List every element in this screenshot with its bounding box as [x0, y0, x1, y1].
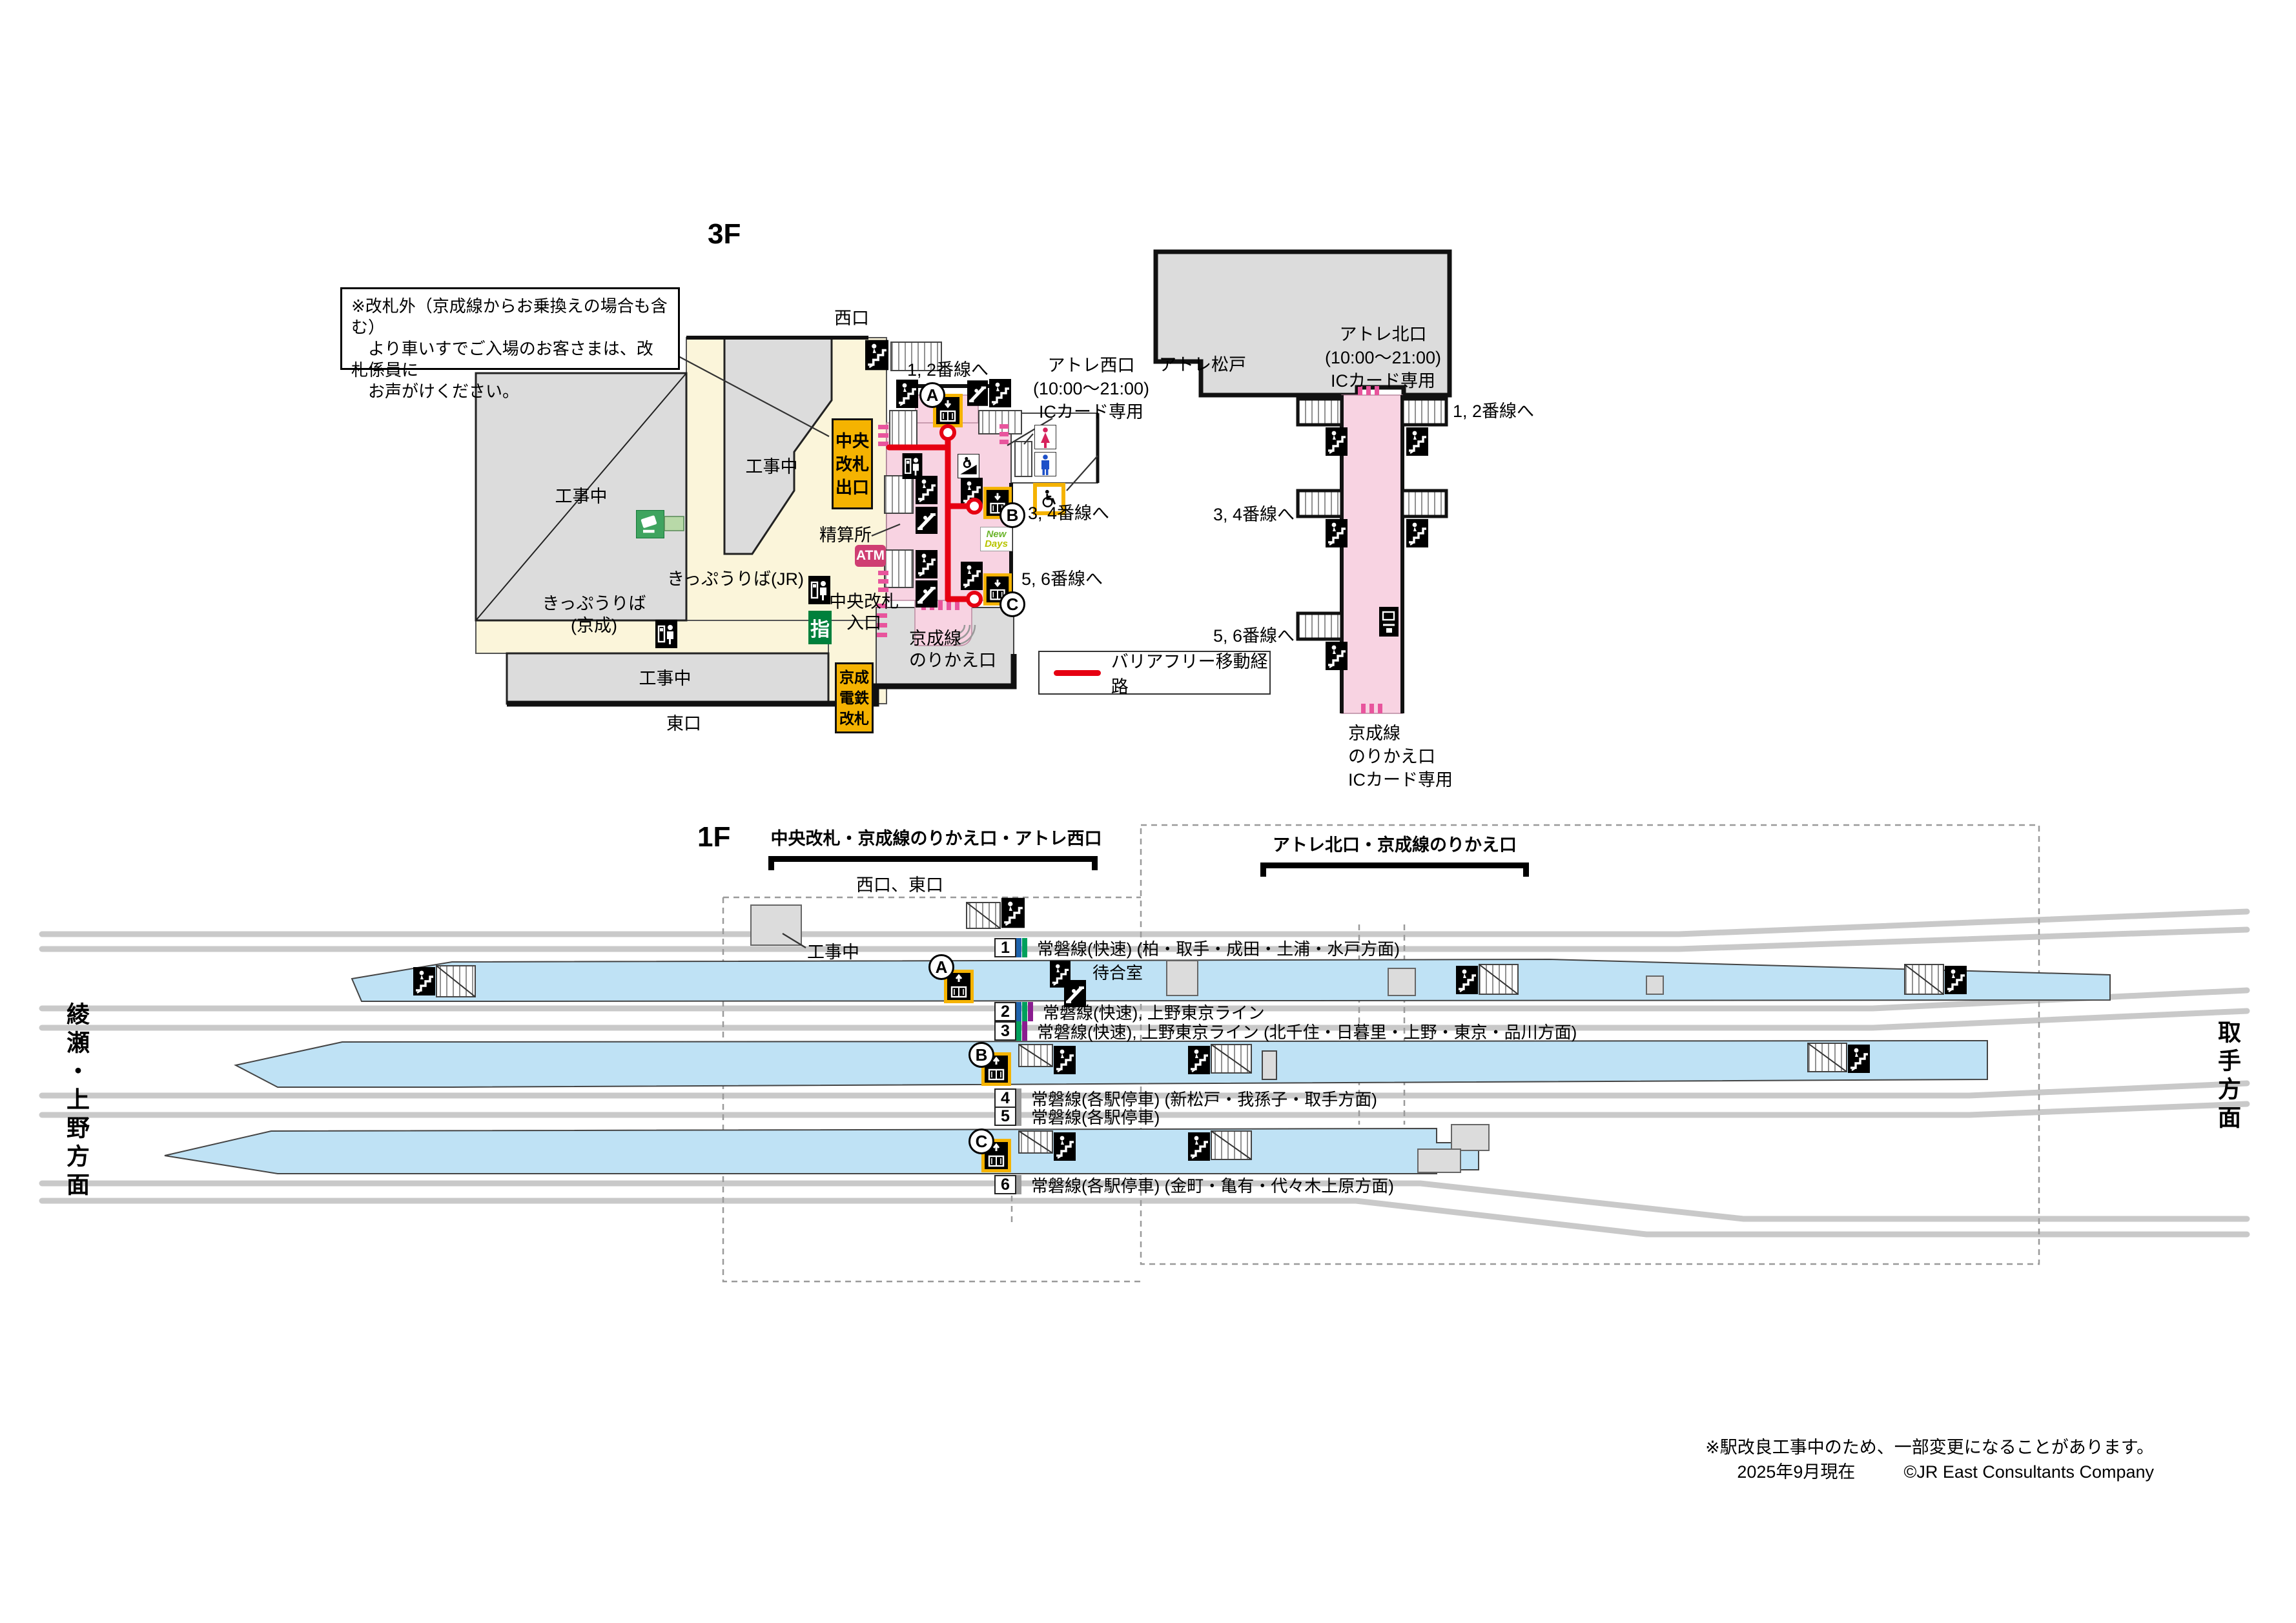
waiting-room-label: 待合室	[1092, 962, 1143, 984]
elevator-A-badge: A	[928, 954, 954, 980]
stairs-icon	[1406, 427, 1428, 456]
platform-label: 常磐線(快速), 上野東京ライン	[1034, 1002, 1265, 1021]
stairs-icon	[1945, 966, 1967, 994]
to-tracks-12-label: 1, 2番線へ	[1453, 400, 1534, 422]
wheelchair-note: ※改札外（京成線からお乗換えの場合も含む） より車いすでご入場のお客さまは、改札…	[340, 287, 680, 370]
stairs-icon	[865, 340, 888, 371]
footer-credit-line: 2025年9月現在 ©JR East Consultants Company	[1573, 1458, 2154, 1483]
line-color-stripes	[1016, 1107, 1022, 1126]
atm-box: ATM	[855, 545, 886, 567]
north-corridor	[1342, 395, 1402, 713]
stairs-icon	[916, 550, 938, 578]
line-color-stripes	[1016, 1021, 1028, 1041]
stairs-icon	[1326, 642, 1348, 670]
construction-label: 工事中	[613, 668, 717, 689]
construction-label: 工事中	[529, 485, 633, 507]
platform-row: 1 常磐線(快速) (柏・取手・成田・土浦・水戸方面)	[994, 938, 1400, 957]
platform-label: 常磐線(快速), 上野東京ライン (北千住・日暮里・上野・東京・品川方面)	[1028, 1021, 1577, 1041]
atre-north-label: アトレ北口 (10:00〜21:00) ICカード専用	[1299, 323, 1467, 393]
platform-row: 3 常磐線(快速), 上野東京ライン (北千住・日暮里・上野・東京・品川方面)	[994, 1021, 1577, 1041]
ticket-office-jr-label: きっぷうりば(JR)	[642, 568, 804, 590]
atre-matsudo-label: アトレ松戸	[1159, 354, 1269, 376]
central-gate-exit-box: 中央 改札 出口	[832, 418, 873, 509]
elevator-B-badge: B	[999, 502, 1025, 528]
footer-credit: ©JR East Consultants Company	[1903, 1462, 2154, 1482]
platform-number: 6	[994, 1175, 1016, 1194]
escalator-icon	[967, 380, 988, 406]
to-tracks-12-label: 1, 2番線へ	[907, 359, 989, 381]
stairs-icon	[1406, 519, 1428, 547]
west-exit-label: 西口	[834, 307, 869, 329]
bracket-right-bar	[1260, 863, 1529, 868]
platform-number: 4	[994, 1088, 1016, 1108]
platform-island-1-2	[352, 959, 2110, 1001]
line-color-stripes	[1016, 1175, 1022, 1194]
line-color-stripes	[1016, 938, 1028, 957]
elevator-C-badge: C	[969, 1128, 994, 1154]
platform-island-5-6	[165, 1128, 1479, 1174]
stairs-icon	[1054, 1132, 1076, 1161]
escalator-icon	[916, 580, 938, 607]
line-color-stripes	[1016, 1002, 1034, 1021]
footer-date: 2025年9月現在	[1737, 1462, 1855, 1482]
stairs-icon	[1326, 519, 1348, 547]
fare-gate-attendant-icon	[903, 453, 923, 479]
line-color-stripes	[1016, 1088, 1022, 1108]
platform-island-3-4	[236, 1041, 1987, 1087]
stairs-icon	[896, 380, 918, 408]
platform-number: 1	[994, 938, 1016, 957]
construction-label: 工事中	[807, 941, 859, 963]
bracket-right-label: アトレ北口・京成線のりかえ口	[1259, 834, 1530, 856]
stairs-icon	[1054, 1046, 1076, 1074]
fare-adjustment-label: 精算所	[795, 524, 872, 546]
stairs-icon	[413, 967, 435, 995]
to-tracks-56-label: 5, 6番線へ	[1198, 625, 1295, 647]
escalator-icon	[916, 507, 938, 534]
keisei-gate-box: 京成 電鉄 改札	[835, 662, 874, 733]
platform-number: 2	[994, 1002, 1016, 1021]
ticket-office-keisei-label: きっぷうりば (京成)	[536, 593, 652, 637]
bracket-left-label: 中央改札・京成線のりかえ口・アトレ西口	[768, 828, 1104, 850]
stairs-icon	[1001, 898, 1025, 928]
floor-map-canvas	[0, 0, 2296, 1623]
platform-label: 常磐線(各駅停車)	[1022, 1107, 1160, 1126]
station-map: 3F 1F ※改札外（京成線からお乗換えの場合も含む） より車いすでご入場のお客…	[0, 0, 2296, 1623]
to-tracks-34-label: 3, 4番線へ	[1198, 504, 1295, 526]
platform-row: 5 常磐線(各駅停車)	[994, 1107, 1160, 1126]
stairs-icon	[1188, 1132, 1210, 1161]
wheelchair-ramp-icon	[958, 454, 979, 478]
bracket-left-bar	[768, 856, 1098, 862]
footer-note: ※駅改良工事中のため、一部変更になることがあります。	[1573, 1433, 2154, 1458]
stairs-icon	[961, 562, 983, 590]
stairs-icon	[916, 476, 938, 504]
toilet-women-icon	[1034, 425, 1056, 449]
stairs-icon	[1456, 966, 1478, 994]
to-tracks-34-label: 3, 4番線へ	[1028, 502, 1109, 524]
platform-row: 6 常磐線(各駅停車) (金町・亀有・代々木上原方面)	[994, 1175, 1394, 1194]
floor3-title: 3F	[708, 218, 741, 250]
platform-number: 3	[994, 1021, 1016, 1041]
elevator-A-badge: A	[919, 382, 945, 408]
keisei-transfer-ic-label: 京成線 のりかえ口 ICカード専用	[1348, 722, 1453, 791]
ticket-machine-icon	[655, 620, 677, 648]
stairs-icon	[1188, 1046, 1210, 1074]
central-gate-entrance-label: 中央改札 入口	[825, 591, 903, 634]
stairs-icon	[1326, 427, 1348, 456]
legend-label: バリアフリー移動経路	[1111, 648, 1269, 698]
direction-ayase-ueno: 綾瀬・上野方面	[59, 1002, 93, 1201]
construction-label: 工事中	[730, 456, 814, 478]
west-east-exits-label: 西口、東口	[856, 874, 943, 896]
green-ticket-machine-icon	[636, 510, 664, 538]
toilet-men-icon	[1034, 452, 1056, 476]
stairs-icon	[989, 379, 1011, 407]
platform-row: 2 常磐線(快速), 上野東京ライン	[994, 1002, 1265, 1021]
direction-toride: 取手方面	[2211, 1020, 2244, 1134]
platform-label: 常磐線(各駅停車) (金町・亀有・代々木上原方面)	[1022, 1175, 1394, 1194]
legend-box: バリアフリー移動経路	[1038, 651, 1271, 695]
to-tracks-56-label: 5, 6番線へ	[1021, 568, 1103, 590]
atre-west-label: アトレ西口 (10:00〜21:00) ICカード専用	[1010, 354, 1172, 424]
east-exit-label: 東口	[666, 713, 701, 735]
keisei-transfer-label: 京成線 のりかえ口	[909, 628, 996, 671]
floor1-title: 1F	[697, 821, 730, 853]
newdays-shop: New Days	[980, 527, 1012, 551]
stairs-icon	[1848, 1045, 1870, 1073]
barrier-free-route-sample	[1054, 670, 1101, 676]
newdays-line2: Days	[985, 539, 1008, 549]
reserved-seat-machine-box: 指	[808, 611, 832, 644]
platform-number: 5	[994, 1107, 1016, 1126]
ic-card-reader-icon	[1379, 607, 1399, 637]
newdays-line1: New	[987, 529, 1007, 539]
elevator-C-badge: C	[999, 591, 1025, 617]
elevator-B-badge: B	[969, 1042, 994, 1068]
platform-label: 常磐線(快速) (柏・取手・成田・土浦・水戸方面)	[1028, 938, 1400, 957]
